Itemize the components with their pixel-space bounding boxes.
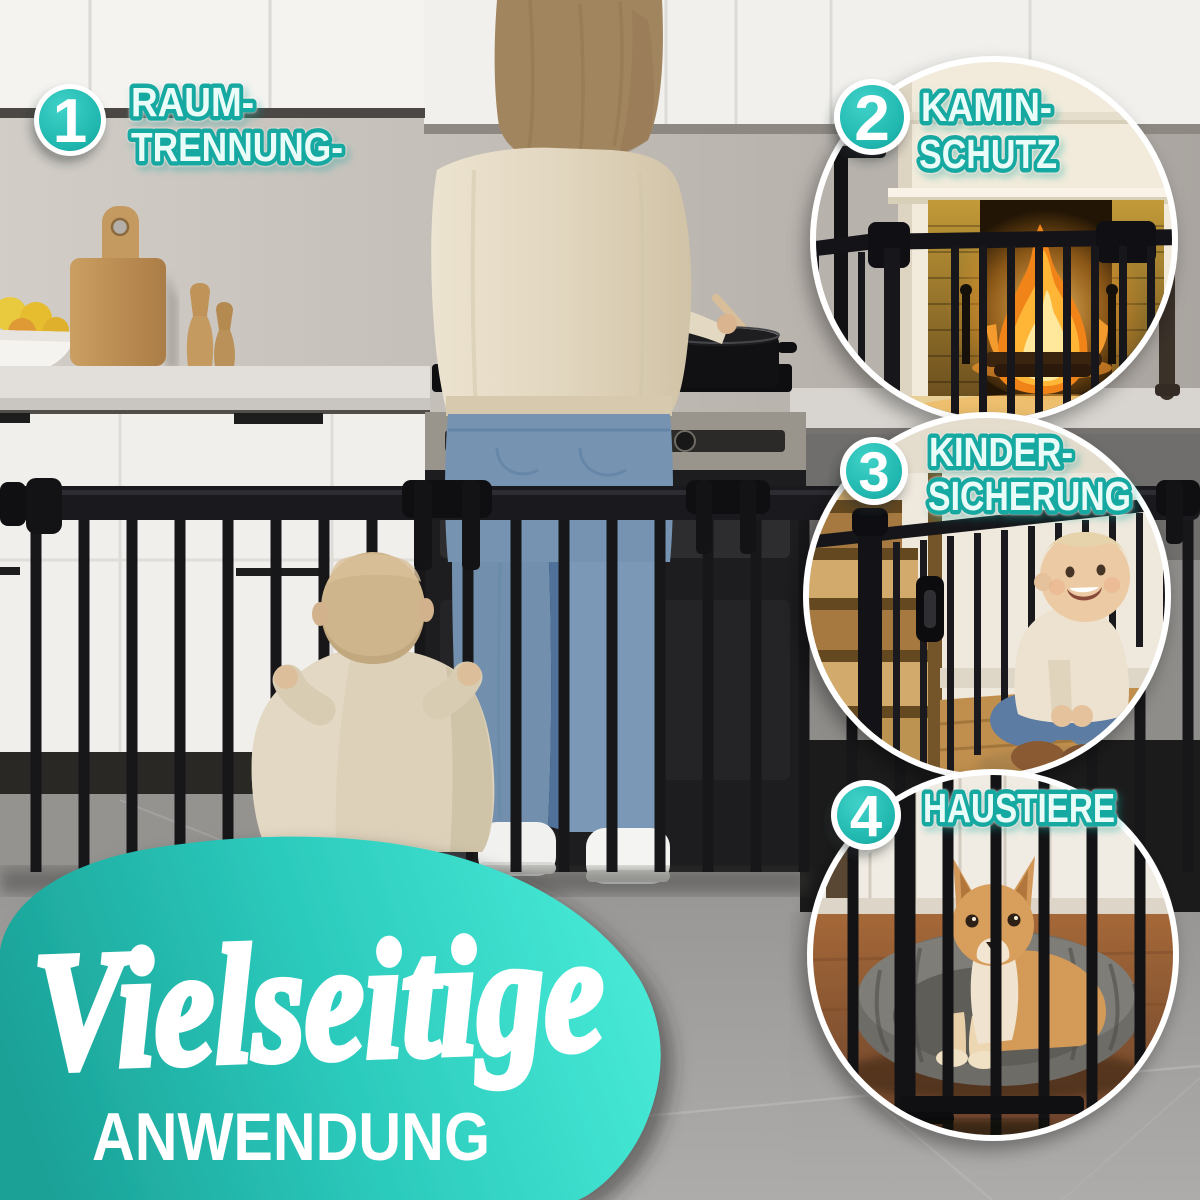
svg-text:HAUSTIERE: HAUSTIERE — [923, 785, 1115, 831]
svg-text:KAMIN-: KAMIN- — [921, 84, 1052, 130]
svg-text:RAUM-: RAUM- — [131, 79, 254, 125]
svg-text:SICHERUNG: SICHERUNG — [928, 473, 1131, 519]
svg-text:SCHUTZ: SCHUTZ — [919, 131, 1057, 177]
svg-text:TRENNUNG-: TRENNUNG- — [131, 124, 343, 170]
svg-text:3: 3 — [858, 440, 889, 503]
svg-text:Vielseitige: Vielseitige — [31, 899, 607, 1105]
svg-text:4: 4 — [850, 784, 882, 849]
svg-text:KINDER-: KINDER- — [929, 429, 1073, 475]
svg-text:1: 1 — [53, 87, 87, 156]
svg-text:ANWENDUNG: ANWENDUNG — [92, 1099, 490, 1175]
svg-text:2: 2 — [854, 82, 890, 154]
